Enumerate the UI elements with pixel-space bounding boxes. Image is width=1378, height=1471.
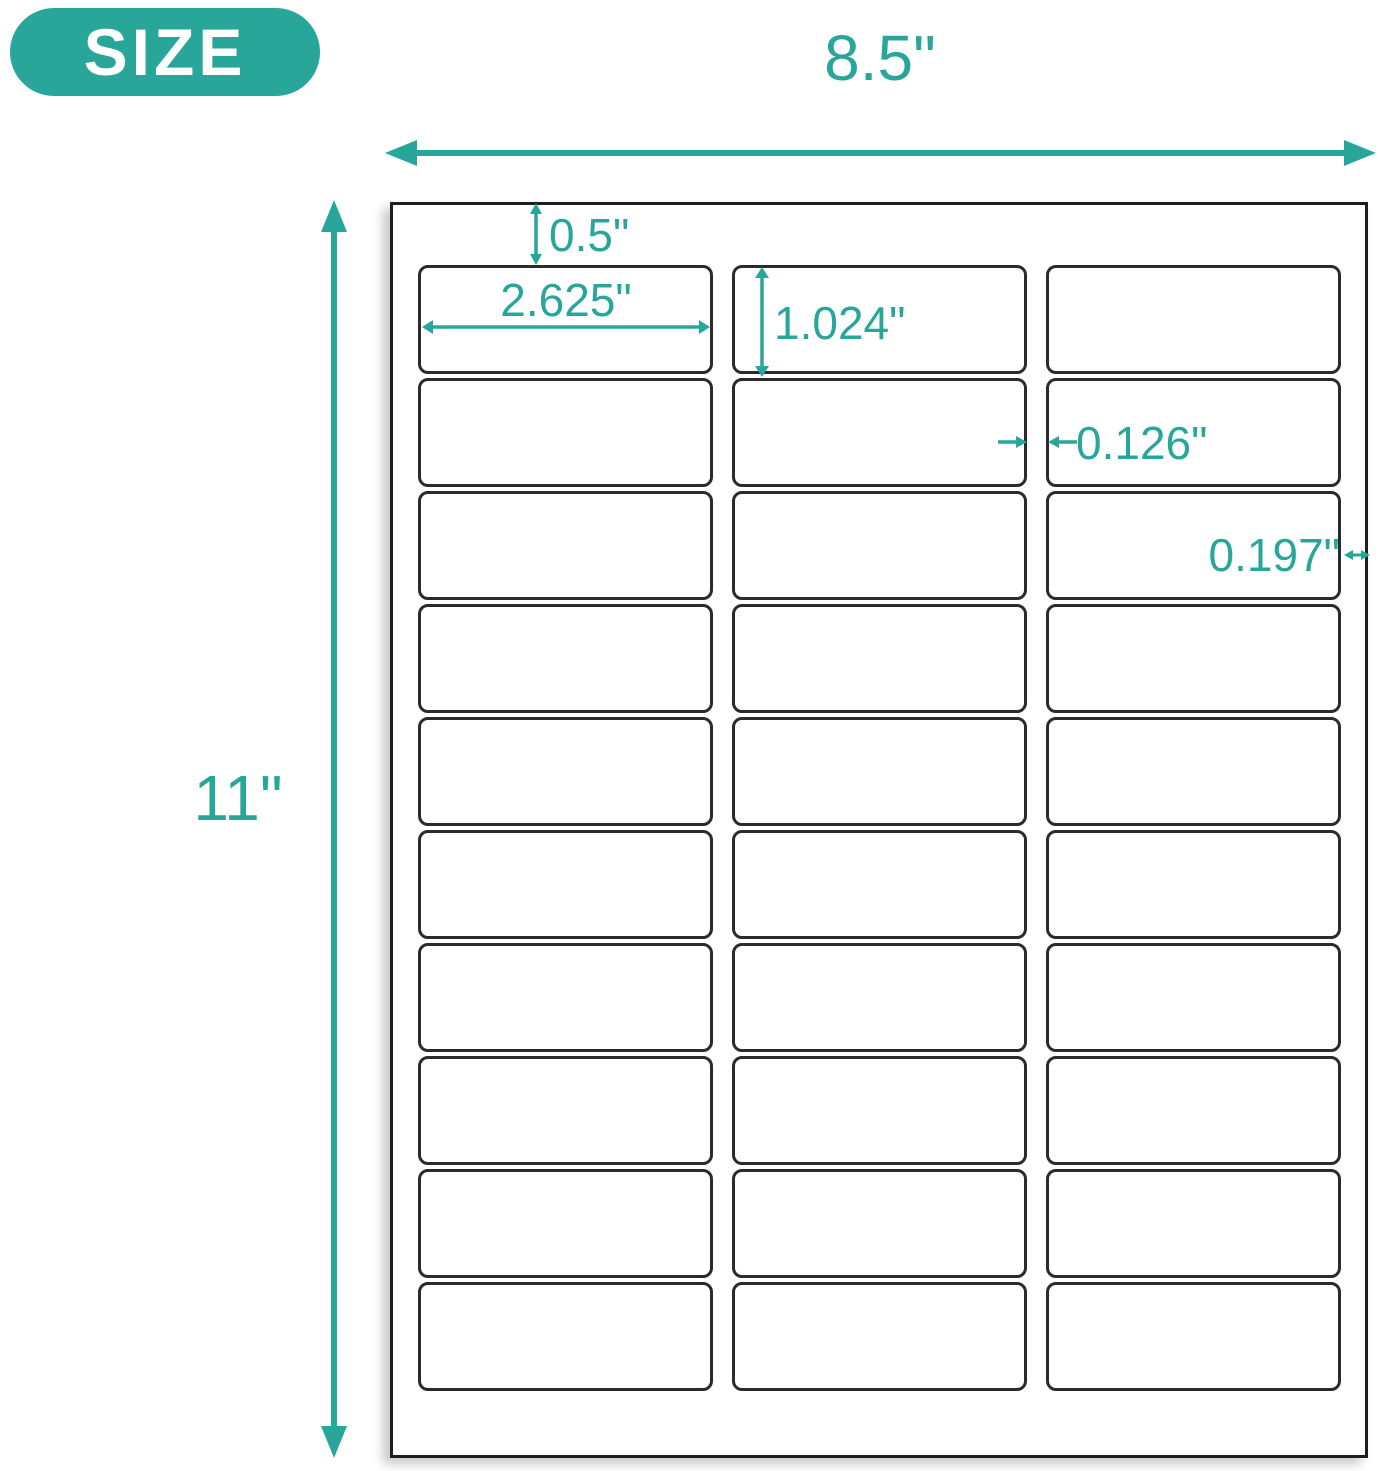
size-badge-label: SIZE [84, 14, 247, 90]
label-cell [732, 943, 1027, 1052]
sheet-height-arrow [317, 198, 351, 1460]
label-width-arrow [421, 316, 711, 338]
label-cell [1046, 265, 1341, 374]
right-margin-arrow [1344, 546, 1370, 564]
label-cell [1046, 1056, 1341, 1165]
label-cell [1046, 717, 1341, 826]
sheet-width-arrow [383, 136, 1378, 170]
label-cell [418, 717, 713, 826]
top-margin-label: 0.5" [549, 212, 629, 258]
label-cell [418, 378, 713, 487]
label-cell [732, 1282, 1027, 1391]
column-gap-arrow-right [1047, 433, 1079, 451]
label-cell [732, 1169, 1027, 1278]
label-cell [732, 378, 1027, 487]
label-cell [732, 830, 1027, 939]
label-cell [1046, 943, 1341, 1052]
column-gap-arrow-left [996, 433, 1028, 451]
size-diagram: SIZE 8.5" 11" 0.5" 2.625" 1.024" [0, 0, 1378, 1471]
label-cell [418, 604, 713, 713]
label-cell [418, 943, 713, 1052]
label-cell [732, 491, 1027, 600]
label-cell [1046, 830, 1341, 939]
label-height-label: 1.024" [774, 300, 905, 346]
right-margin-label: 0.197" [1102, 532, 1340, 578]
label-sheet [390, 202, 1368, 1458]
label-cell [418, 1282, 713, 1391]
label-cell [418, 491, 713, 600]
label-cell [1046, 1282, 1341, 1391]
sheet-width-label: 8.5" [770, 26, 990, 90]
label-cell [1046, 604, 1341, 713]
label-cell [418, 1169, 713, 1278]
sheet-height-label: 11" [158, 766, 318, 830]
label-cell [732, 604, 1027, 713]
label-cell [418, 830, 713, 939]
label-cell [418, 1056, 713, 1165]
top-margin-arrow [524, 203, 548, 265]
label-height-arrow [751, 267, 773, 377]
label-cell [732, 1056, 1027, 1165]
size-badge: SIZE [10, 8, 320, 96]
column-gap-label: 0.126" [1076, 420, 1207, 466]
label-cell [732, 717, 1027, 826]
label-cell [1046, 1169, 1341, 1278]
